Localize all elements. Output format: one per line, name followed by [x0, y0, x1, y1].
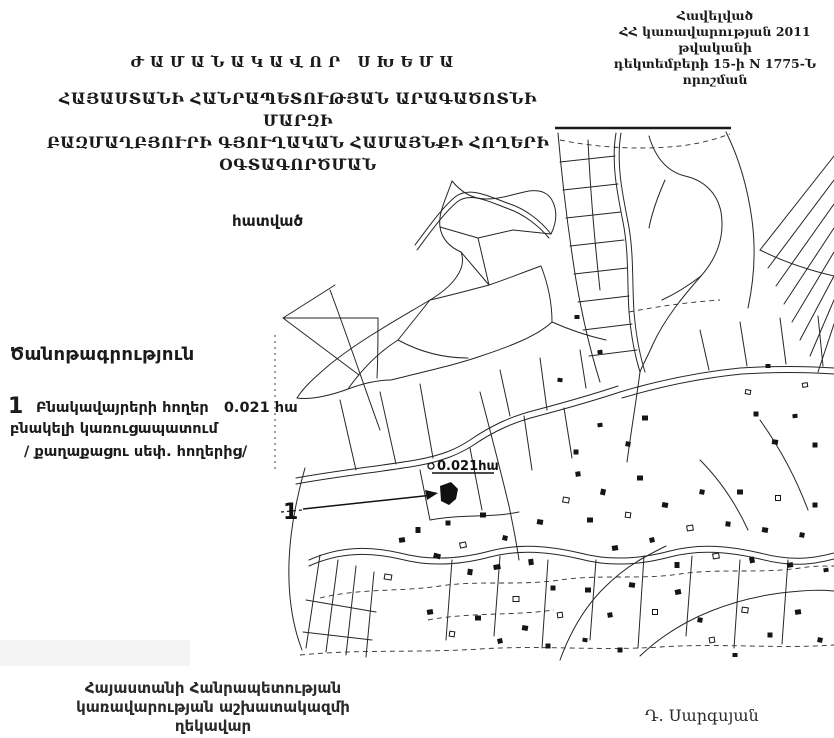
appendix-note: Հավելված ՀՀ կառավարության 2011 թվականի դ…: [596, 8, 834, 88]
map-section-label: հատված: [232, 212, 303, 230]
scan-smudge: [0, 640, 190, 666]
parcel-area-label: 0.021հա: [437, 459, 499, 474]
subtitle-line-2: ԲԱԶՄԱՂԲՅՈՒՐԻ ԳՅՈՒՂԱԿԱՆ ՀԱՄԱՅՆՔԻ ՀՈՂԵՐԻ: [28, 132, 568, 154]
scanned-document: { "appendix": { "lines": [ "Հավելված", "…: [0, 0, 834, 738]
subtitle-line-3: ՕԳՏԱԳՈՐԾՄԱՆ: [28, 154, 568, 176]
legend-item-line2: բնակելի կառուցապատում: [10, 421, 218, 437]
signature-name: Դ. Սարգսյան: [645, 706, 759, 725]
legend-item-text: Բնակավայրերի հողեր 0.021 հա: [36, 400, 298, 416]
legend-heading: Ծանոթագրություն: [10, 344, 195, 365]
appendix-line-1: Հավելված: [596, 8, 834, 24]
office-line-1: Հայաստանի Հանրապետության: [70, 679, 356, 698]
signature-office: Հայաստանի Հանրապետության կառավարության ա…: [70, 679, 356, 736]
legend-item-line3: / քաղաքացու սեփ. հողերից/: [24, 444, 247, 460]
legend-item-number: 1: [8, 394, 23, 419]
parcel-marker-circle: [428, 463, 434, 469]
appendix-line-3: դեկտեմբերի 15-ի N 1775-Ն որոշման: [596, 56, 834, 88]
office-line-2: կառավարության աշխատակազմի: [70, 698, 356, 717]
leader-arrowhead: [425, 490, 438, 500]
office-line-3: ղեկավար: [70, 717, 356, 736]
parcel-lines: [283, 132, 834, 660]
subtitle-line-1: ՀԱՅԱՍՏԱՆԻ ՀԱՆՐԱՊԵՏՈՒԹՅԱՆ ԱՐԱԳԱԾՈՏՆԻ ՄԱՐԶ…: [28, 88, 568, 132]
appendix-line-2: ՀՀ կառավարության 2011 թվականի: [596, 24, 834, 56]
map-parcel-number: 1: [283, 500, 298, 525]
leader-line: [303, 495, 433, 509]
document-subtitle: ՀԱՅԱՍՏԱՆԻ ՀԱՆՐԱՊԵՏՈՒԹՅԱՆ ԱՐԱԳԱԾՈՏՆԻ ՄԱՐԶ…: [28, 88, 568, 176]
document-title: ԺԱՄԱՆԱԿԱՎՈՐ ՍԽԵՄԱ: [95, 53, 495, 71]
highlighted-parcel: [440, 482, 458, 505]
